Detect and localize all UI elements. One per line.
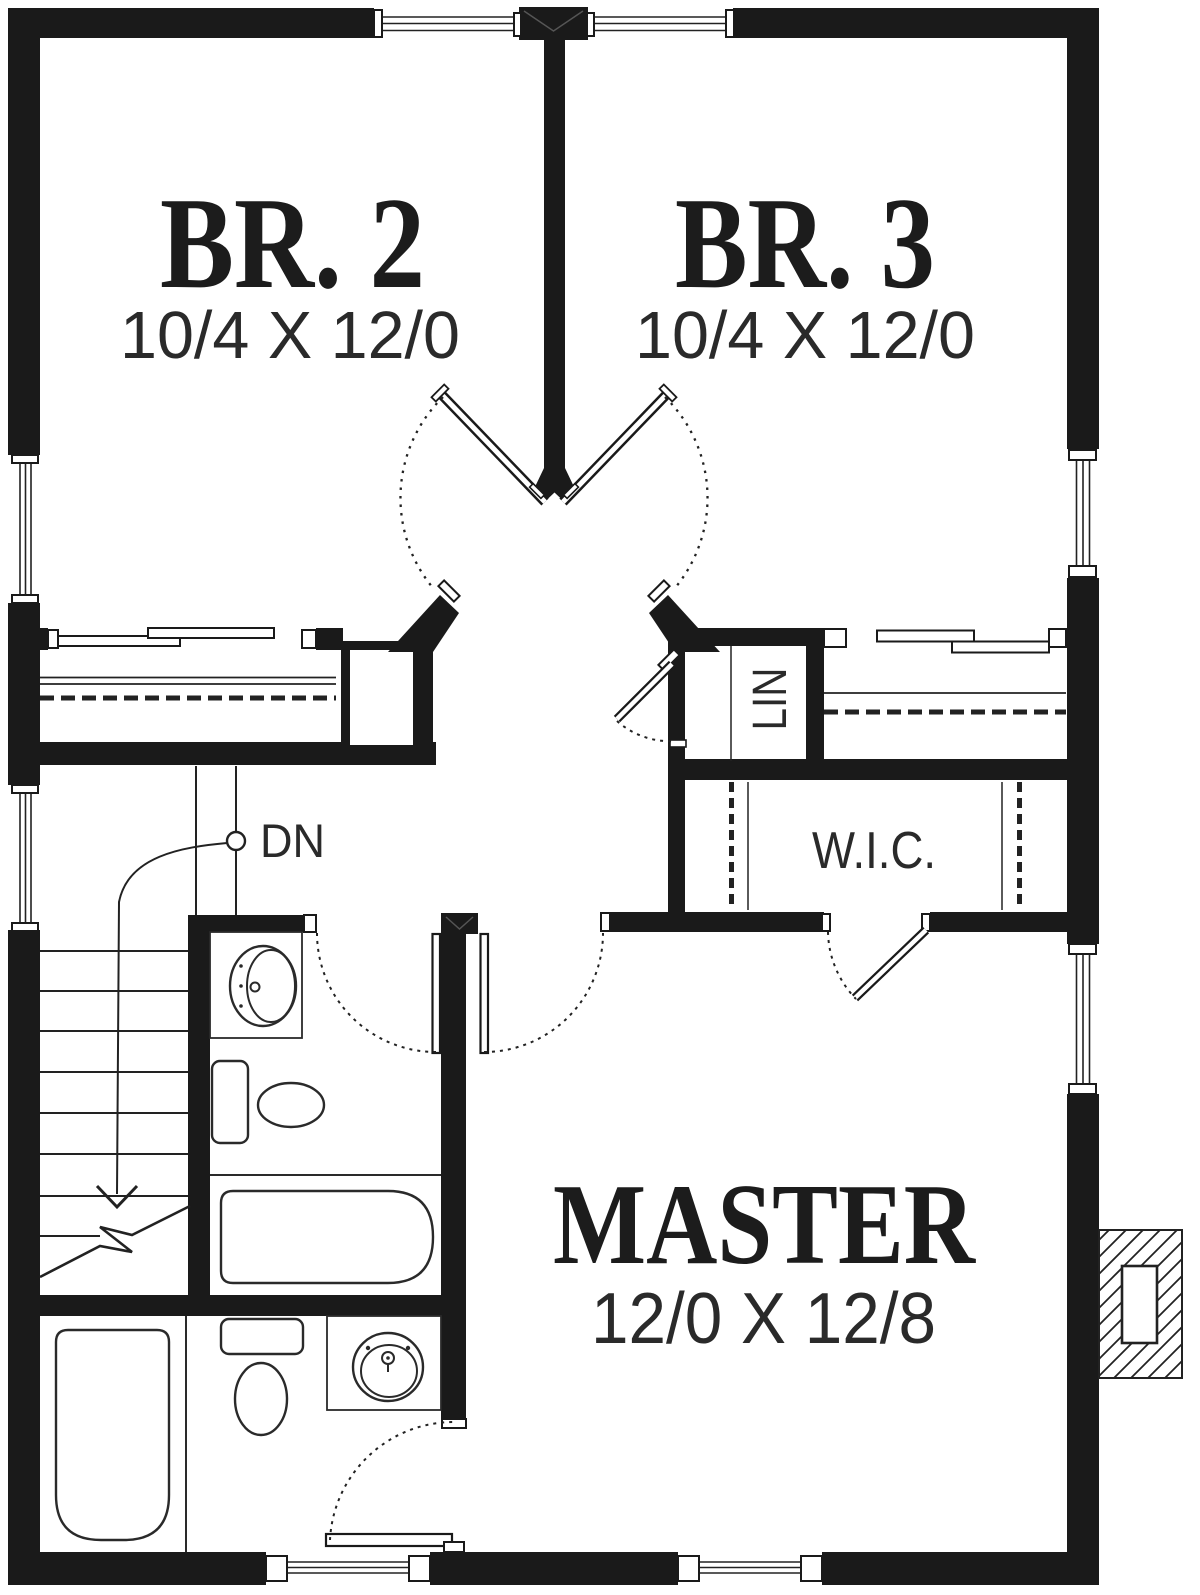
svg-text:DN: DN — [260, 814, 325, 867]
svg-text:BR. 2: BR. 2 — [160, 171, 425, 316]
svg-text:MASTER: MASTER — [553, 1161, 977, 1288]
svg-text:W.I.C.: W.I.C. — [812, 822, 936, 880]
svg-text:10/4 X 12/0: 10/4 X 12/0 — [635, 298, 975, 373]
svg-text:12/0 X 12/8: 12/0 X 12/8 — [591, 1279, 936, 1359]
svg-text:10/4 X 12/0: 10/4 X 12/0 — [120, 298, 460, 373]
svg-text:BR. 3: BR. 3 — [675, 171, 935, 316]
svg-text:LIN: LIN — [744, 668, 797, 731]
